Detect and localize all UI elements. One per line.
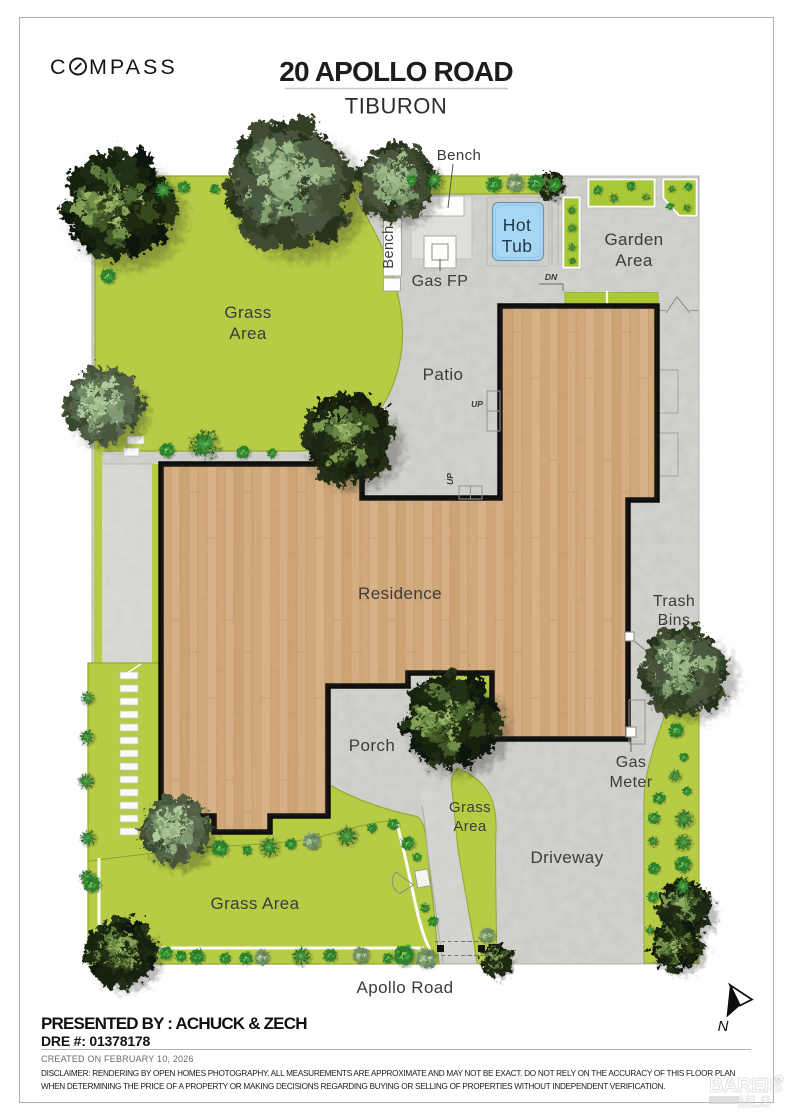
svg-text:CREATED ON FEBRUARY 10, 2026: CREATED ON FEBRUARY 10, 2026 <box>41 1054 194 1064</box>
svg-text:Patio: Patio <box>423 365 464 384</box>
svg-text:Area: Area <box>453 818 487 835</box>
svg-text:Bins: Bins <box>658 612 691 629</box>
svg-text:R: R <box>777 1078 782 1084</box>
svg-text:Garden: Garden <box>604 230 663 249</box>
svg-text:DN: DN <box>545 272 558 282</box>
svg-text:Hot: Hot <box>503 215 531 235</box>
svg-text:Tub: Tub <box>502 236 533 256</box>
svg-text:MPASS: MPASS <box>89 55 178 79</box>
svg-text:WHEN DETERMINING THE PRICE OF: WHEN DETERMINING THE PRICE OF A PROPERTY… <box>41 1082 665 1091</box>
svg-text:N: N <box>718 1018 729 1035</box>
svg-text:Gas: Gas <box>616 754 647 771</box>
svg-text:20 APOLLO ROAD: 20 APOLLO ROAD <box>279 56 513 87</box>
svg-text:PRESENTED BY : ACHUCK & ZECH: PRESENTED BY : ACHUCK & ZECH <box>41 1014 307 1033</box>
svg-text:UP: UP <box>471 399 483 409</box>
svg-text:TIBURON: TIBURON <box>345 94 448 119</box>
svg-text:Area: Area <box>615 251 653 270</box>
svg-text:Meter: Meter <box>610 774 653 791</box>
svg-text:UP: UP <box>445 473 455 485</box>
svg-text:Apollo Road: Apollo Road <box>356 978 453 997</box>
svg-text:Grass: Grass <box>224 303 271 322</box>
svg-text:Driveway: Driveway <box>530 848 603 867</box>
svg-text:Grass Area: Grass Area <box>210 894 299 913</box>
svg-text:Gas FP: Gas FP <box>412 273 469 290</box>
svg-text:C: C <box>50 55 69 79</box>
svg-text:MLS: MLS <box>738 1094 771 1111</box>
svg-text:Area: Area <box>229 324 267 343</box>
svg-text:Residence: Residence <box>358 584 442 603</box>
svg-text:DISCLAIMER: RENDERING BY OPEN: DISCLAIMER: RENDERING BY OPEN HOMES PHOT… <box>41 1069 735 1078</box>
svg-text:Trash: Trash <box>653 593 695 610</box>
svg-text:Bench: Bench <box>381 225 397 268</box>
svg-text:Porch: Porch <box>349 736 395 755</box>
svg-text:Grass: Grass <box>449 799 491 816</box>
svg-text:Bench: Bench <box>437 147 482 164</box>
svg-text:DRE #: 01378178: DRE #: 01378178 <box>41 1033 150 1049</box>
